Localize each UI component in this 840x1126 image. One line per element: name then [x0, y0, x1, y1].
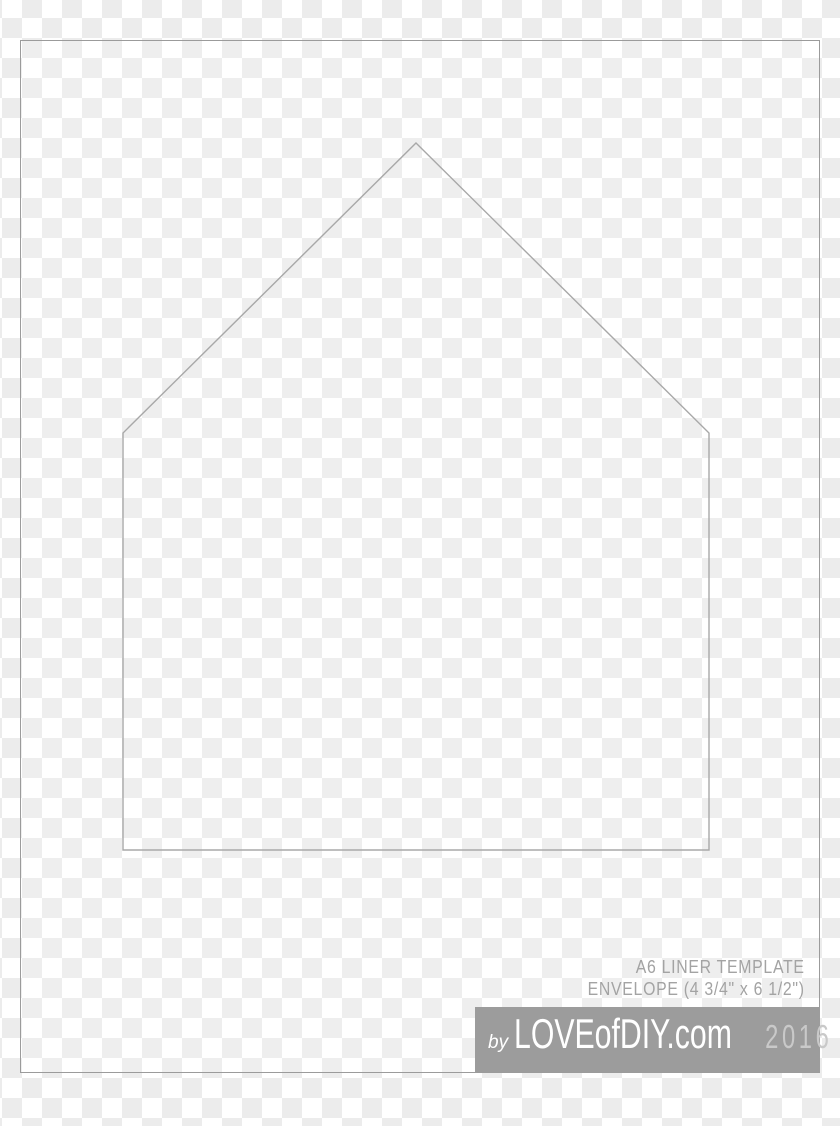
template-size: ENVELOPE (4 3/4" x 6 1/2"): [588, 978, 805, 1000]
by-label: by: [488, 1033, 508, 1052]
brand-name-wrap: LOVEofDIY.com: [514, 1013, 732, 1055]
transparency-checkerboard: A6 LINER TEMPLATE ENVELOPE (4 3/4" x 6 1…: [0, 0, 840, 1126]
credit-banner: by LOVEofDIY.com 2016: [475, 1007, 820, 1072]
year-label: 2016: [765, 1020, 832, 1053]
brand-name: LOVEofDIY.com: [514, 1013, 732, 1055]
template-caption: A6 LINER TEMPLATE ENVELOPE (4 3/4" x 6 1…: [588, 956, 805, 1000]
template-page-frame: [20, 40, 820, 1073]
year-wrap: 2016: [739, 1020, 805, 1053]
template-title: A6 LINER TEMPLATE: [588, 956, 805, 978]
